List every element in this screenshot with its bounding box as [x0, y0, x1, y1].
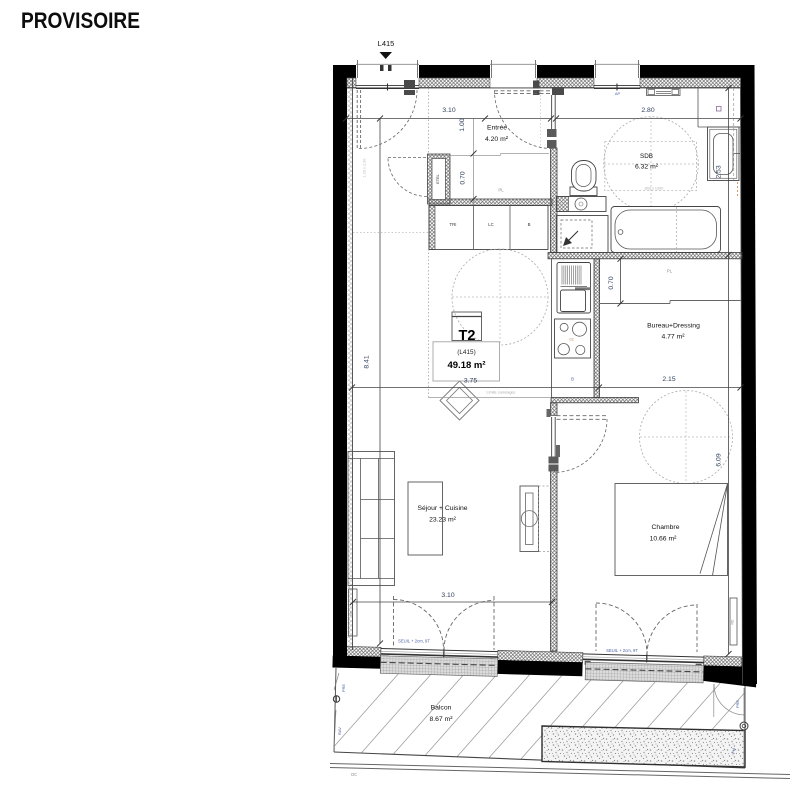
svg-text:3.75: 3.75	[464, 378, 477, 385]
svg-text:Limite carrelages: Limite carrelages	[487, 391, 516, 395]
svg-text:2.53: 2.53	[716, 165, 723, 178]
svg-text:OC: OC	[351, 772, 357, 777]
svg-text:1.00: 1.00	[459, 118, 466, 131]
svg-text:LC: LC	[488, 222, 494, 227]
svg-text:(L415): (L415)	[457, 349, 475, 356]
svg-text:4.20 m²: 4.20 m²	[485, 136, 509, 143]
svg-text:PROVISOIRE: PROVISOIRE	[21, 8, 140, 33]
svg-text:PM: PM	[731, 748, 736, 754]
svg-text:8.41: 8.41	[364, 355, 371, 368]
svg-text:49.18 m²: 49.18 m²	[447, 360, 485, 371]
svg-text:GZ: GZ	[569, 338, 573, 342]
svg-text:Balcon: Balcon	[431, 705, 452, 712]
svg-text:PRE: PRE	[341, 684, 346, 693]
svg-text:AP: AP	[615, 91, 621, 96]
svg-text:SEUIL + 2cm, 9T: SEUIL + 2cm, 9T	[606, 648, 638, 653]
svg-text:0.70: 0.70	[460, 171, 467, 184]
svg-text:3.10: 3.10	[441, 592, 454, 599]
svg-text:RAV: RAV	[337, 727, 342, 735]
svg-text:SDB: SDB	[640, 153, 653, 160]
svg-text:L415: L415	[378, 39, 395, 48]
svg-text:RD: RD	[731, 619, 735, 624]
svg-text:RD: RD	[350, 610, 354, 615]
svg-text:800 x 1300: 800 x 1300	[645, 187, 664, 191]
svg-text:3.10: 3.10	[442, 107, 455, 114]
svg-text:TRI: TRI	[450, 222, 457, 227]
svg-text:8.67 m²: 8.67 m²	[429, 716, 453, 723]
svg-text:6.32 m²: 6.32 m²	[635, 164, 659, 171]
svg-text:PL: PL	[498, 188, 504, 193]
svg-text:Entrée: Entrée	[487, 125, 507, 132]
svg-text:B: B	[571, 377, 574, 382]
svg-text:Chambre: Chambre	[652, 524, 680, 531]
svg-text:10.66 m²: 10.66 m²	[650, 536, 678, 543]
svg-text:PL: PL	[667, 269, 673, 274]
svg-text:6.09: 6.09	[716, 453, 723, 466]
svg-text:2.80: 2.80	[641, 107, 654, 114]
svg-text:Bureau+Dressing: Bureau+Dressing	[647, 323, 700, 330]
svg-text:SEUIL + 2cm, 9T: SEUIL + 2cm, 9T	[398, 639, 430, 644]
svg-text:1.20 x 2.20: 1.20 x 2.20	[363, 159, 367, 178]
svg-text:B: B	[528, 222, 531, 227]
svg-text:PRE: PRE	[735, 700, 740, 709]
svg-text:2.15: 2.15	[662, 376, 675, 383]
svg-text:4.77 m²: 4.77 m²	[661, 334, 685, 341]
svg-text:ETEL: ETEL	[436, 174, 440, 184]
svg-text:0.70: 0.70	[608, 276, 615, 289]
